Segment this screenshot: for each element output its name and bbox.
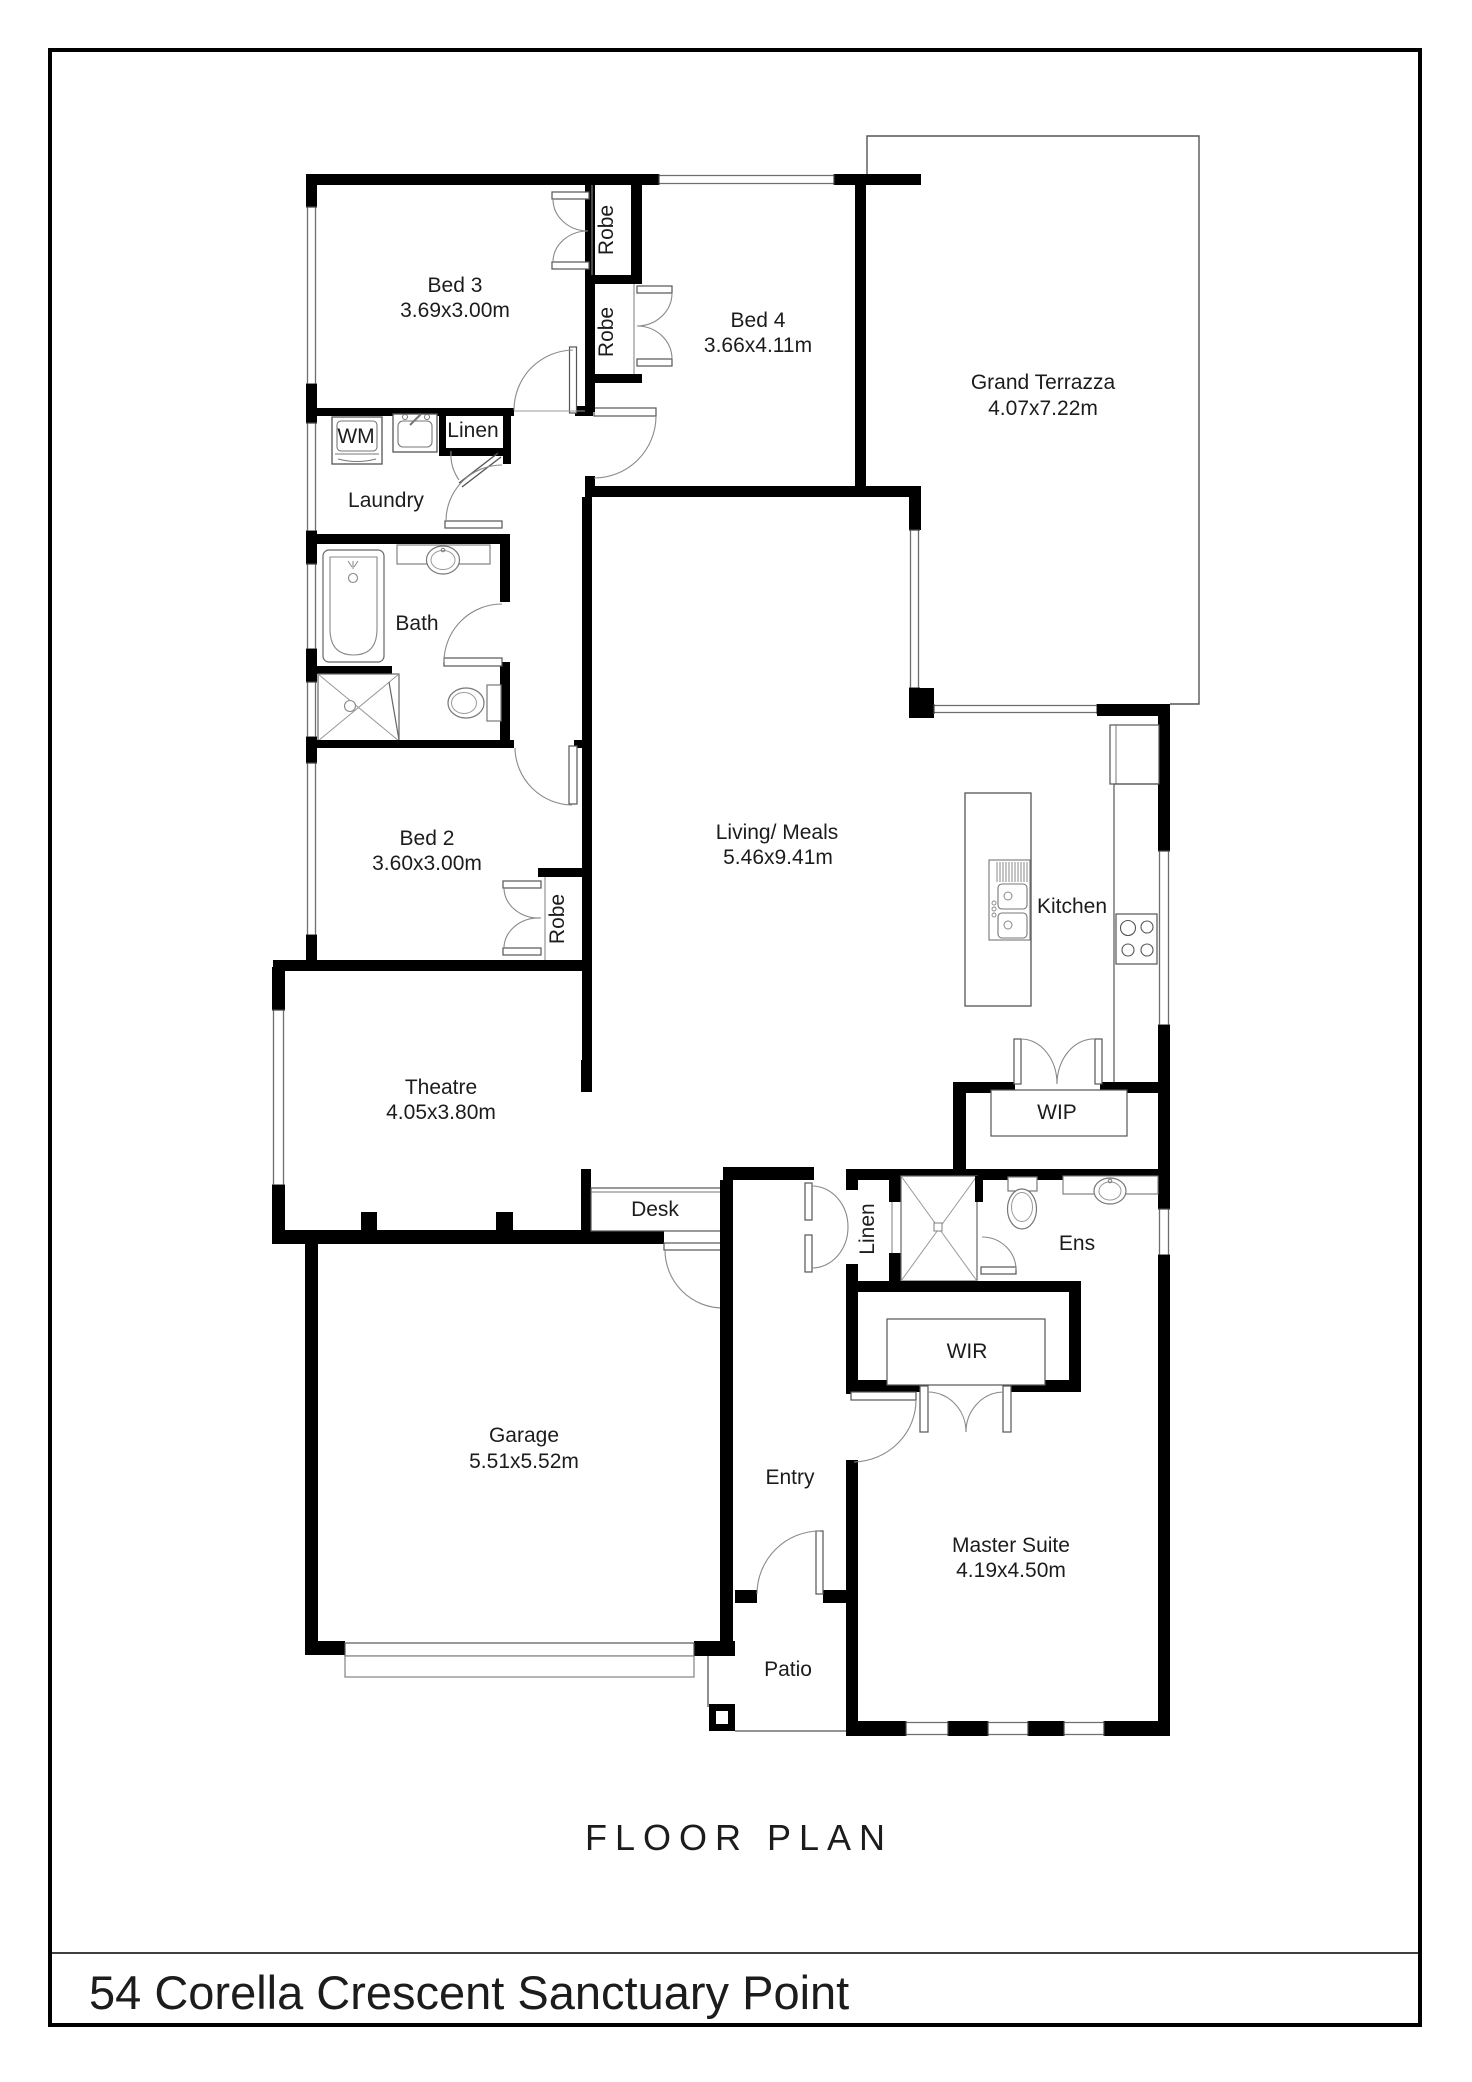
svg-text:54 Corella Crescent Sanctuary: 54 Corella Crescent Sanctuary Point bbox=[89, 1966, 849, 2019]
svg-text:Master Suite: Master Suite bbox=[952, 1534, 1070, 1557]
svg-text:Desk: Desk bbox=[631, 1198, 679, 1221]
svg-text:Bath: Bath bbox=[395, 612, 438, 635]
svg-text:Bed 2: Bed 2 bbox=[400, 827, 455, 850]
svg-text:3.66x4.11m: 3.66x4.11m bbox=[704, 334, 812, 357]
svg-text:FLOOR PLAN: FLOOR PLAN bbox=[585, 1817, 893, 1858]
svg-text:3.69x3.00m: 3.69x3.00m bbox=[400, 299, 510, 322]
svg-text:Ens: Ens bbox=[1059, 1232, 1095, 1255]
svg-text:Garage: Garage bbox=[489, 1424, 559, 1447]
svg-text:WM: WM bbox=[337, 425, 374, 448]
svg-text:Laundry: Laundry bbox=[348, 489, 424, 512]
svg-text:Patio: Patio bbox=[764, 1658, 812, 1681]
svg-text:Linen: Linen bbox=[856, 1203, 879, 1254]
svg-text:Robe: Robe bbox=[595, 307, 618, 357]
svg-text:Robe: Robe bbox=[546, 894, 569, 944]
svg-text:Entry: Entry bbox=[765, 1466, 815, 1489]
svg-text:3.60x3.00m: 3.60x3.00m bbox=[372, 852, 482, 875]
svg-text:5.51x5.52m: 5.51x5.52m bbox=[469, 1450, 579, 1473]
svg-text:Theatre: Theatre bbox=[405, 1076, 477, 1099]
svg-text:WIP: WIP bbox=[1037, 1101, 1077, 1124]
svg-text:Bed 3: Bed 3 bbox=[428, 274, 483, 297]
svg-text:Kitchen: Kitchen bbox=[1037, 895, 1107, 918]
svg-text:Robe: Robe bbox=[595, 205, 618, 255]
svg-text:Living/ Meals: Living/ Meals bbox=[716, 821, 839, 844]
svg-text:Grand Terrazza: Grand Terrazza bbox=[971, 371, 1116, 394]
svg-text:Linen: Linen bbox=[447, 419, 498, 442]
svg-text:4.19x4.50m: 4.19x4.50m bbox=[956, 1559, 1066, 1582]
svg-text:5.46x9.41m: 5.46x9.41m bbox=[723, 846, 833, 869]
svg-text:4.07x7.22m: 4.07x7.22m bbox=[988, 397, 1098, 420]
svg-text:WIR: WIR bbox=[947, 1340, 988, 1363]
svg-text:4.05x3.80m: 4.05x3.80m bbox=[386, 1101, 496, 1124]
svg-text:Bed 4: Bed 4 bbox=[731, 309, 786, 332]
